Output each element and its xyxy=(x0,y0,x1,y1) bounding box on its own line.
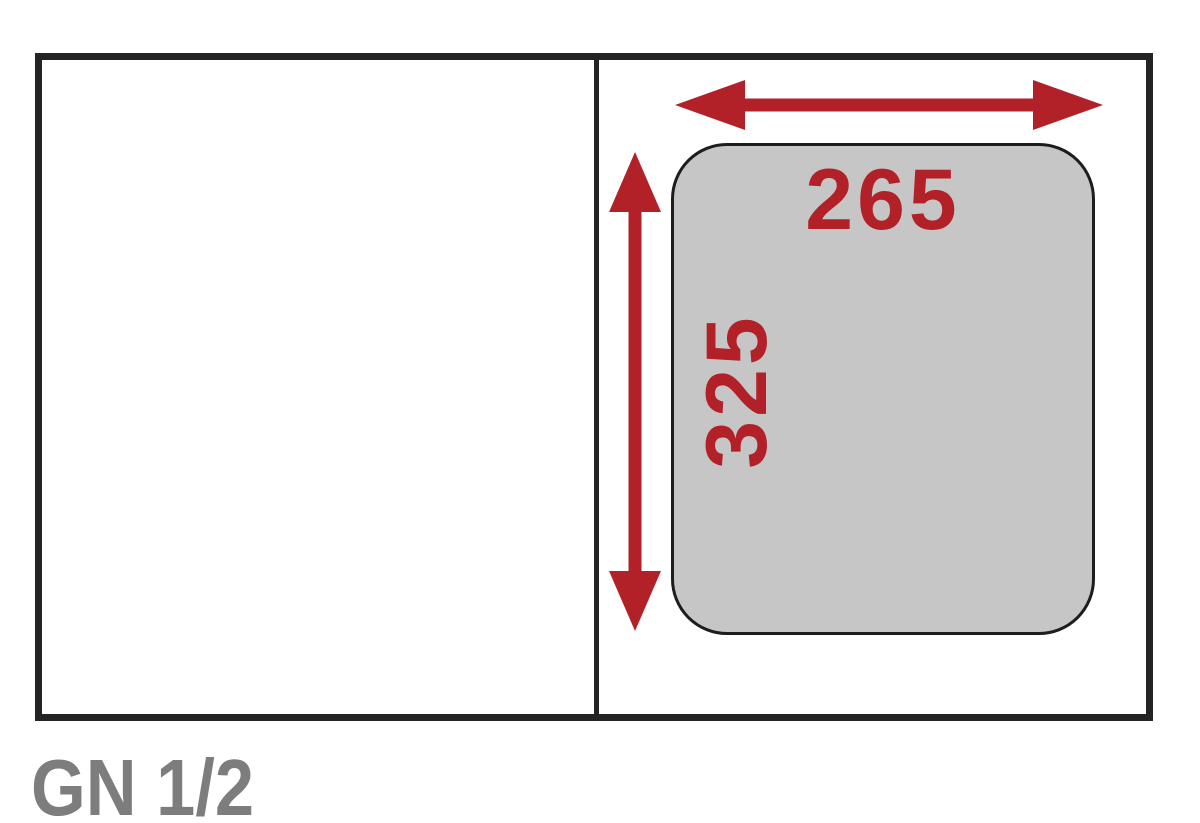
double-arrow-vertical-icon xyxy=(608,150,662,633)
height-dimension-label: 325 xyxy=(694,313,780,469)
tray-divider-line xyxy=(594,58,599,718)
pan-size-caption: GN 1/2 xyxy=(31,748,254,823)
gn-pan-dimension-diagram: 265 325 GN 1/2 xyxy=(0,0,1200,823)
width-dimension-label: 265 xyxy=(671,157,1095,243)
double-arrow-horizontal-icon xyxy=(673,79,1105,131)
